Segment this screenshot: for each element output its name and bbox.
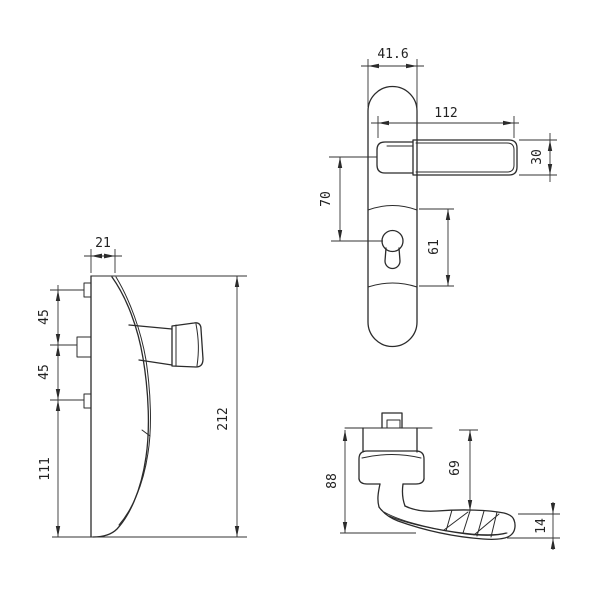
arrow-icon <box>343 430 347 441</box>
knob-inner-right <box>196 324 198 366</box>
arrow-icon <box>56 345 60 356</box>
centerlines <box>329 157 383 241</box>
grip-hatching <box>444 510 499 537</box>
boss-bottom-arc <box>368 283 417 287</box>
arrow-icon <box>235 276 239 287</box>
boss-top-arc <box>368 206 417 211</box>
arrow-icon <box>343 522 347 533</box>
handle-side-view: 88 69 14 <box>325 413 560 550</box>
plate-front-view: 41.6 112 30 70 61 <box>319 47 557 347</box>
handle-lever-front <box>413 140 517 175</box>
drawing-sheet: 21 45 45 111 212 <box>0 0 600 600</box>
arrow-icon <box>548 164 552 175</box>
arrow-icon <box>368 64 379 68</box>
arrow-icon <box>56 526 60 537</box>
arrow-icon <box>235 526 239 537</box>
bell-bottom <box>359 479 424 484</box>
arrow-icon <box>56 400 60 411</box>
dim-label-handle-length: 112 <box>434 106 457 121</box>
rose-sides <box>363 428 417 452</box>
dim-label-pin-pitch-1: 45 <box>37 309 52 325</box>
dim-label-top-width: 21 <box>95 236 111 251</box>
arrow-icon <box>406 64 417 68</box>
spindle-inner <box>387 420 400 428</box>
arrow-icon <box>551 538 555 549</box>
arrow-icon <box>468 430 472 441</box>
bell-outline <box>359 451 424 479</box>
fixing-pin-bottom <box>84 394 91 408</box>
dim-label-plate-width: 41.6 <box>377 47 408 62</box>
arrow-icon <box>104 254 115 259</box>
bell-inner-arc <box>362 455 421 459</box>
plate-outline <box>368 86 417 346</box>
dim-label-handle-height: 30 <box>530 149 545 165</box>
plate-side-view: 21 45 45 111 212 <box>37 236 247 537</box>
arrow-icon <box>503 121 514 125</box>
arrow-icon <box>551 503 555 514</box>
arrow-icon <box>56 389 60 400</box>
handle-lever-inner <box>416 143 514 172</box>
plate-face-curve-outer <box>93 277 148 537</box>
dim-label-boss-height: 61 <box>427 239 442 255</box>
dim-label-overall-depth: 88 <box>325 473 340 489</box>
arrow-icon <box>378 121 389 125</box>
arrow-icon <box>91 254 102 259</box>
dim-chain-lines <box>50 285 84 537</box>
dim-label-lower-span: 111 <box>38 457 53 480</box>
dim-label-handle-to-cylinder: 70 <box>319 191 334 207</box>
arrow-icon <box>338 157 342 168</box>
arrow-icon <box>56 334 60 345</box>
arrow-icon <box>548 140 552 151</box>
arrow-icon <box>338 230 342 241</box>
plate-face-curve-inner <box>116 277 150 525</box>
arrow-icon <box>56 290 60 301</box>
dim-21-lines <box>84 249 122 273</box>
technical-drawing-canvas: 21 45 45 111 212 <box>0 0 600 600</box>
dim-label-drop-to-grip: 69 <box>448 460 463 476</box>
neck-profile <box>378 484 405 507</box>
dim-88-lines <box>340 430 416 533</box>
dim-label-grip-thickness: 14 <box>534 518 549 534</box>
fixing-pin-top <box>84 283 91 297</box>
fixing-pin-middle <box>77 337 91 357</box>
arrow-icon <box>446 275 450 286</box>
handle-neck-front <box>377 142 413 173</box>
arrow-icon <box>446 209 450 220</box>
dim-label-pin-pitch-2: 45 <box>37 364 52 380</box>
dim-label-overall-height: 212 <box>216 407 231 430</box>
euro-keyhole-circle <box>382 231 403 252</box>
